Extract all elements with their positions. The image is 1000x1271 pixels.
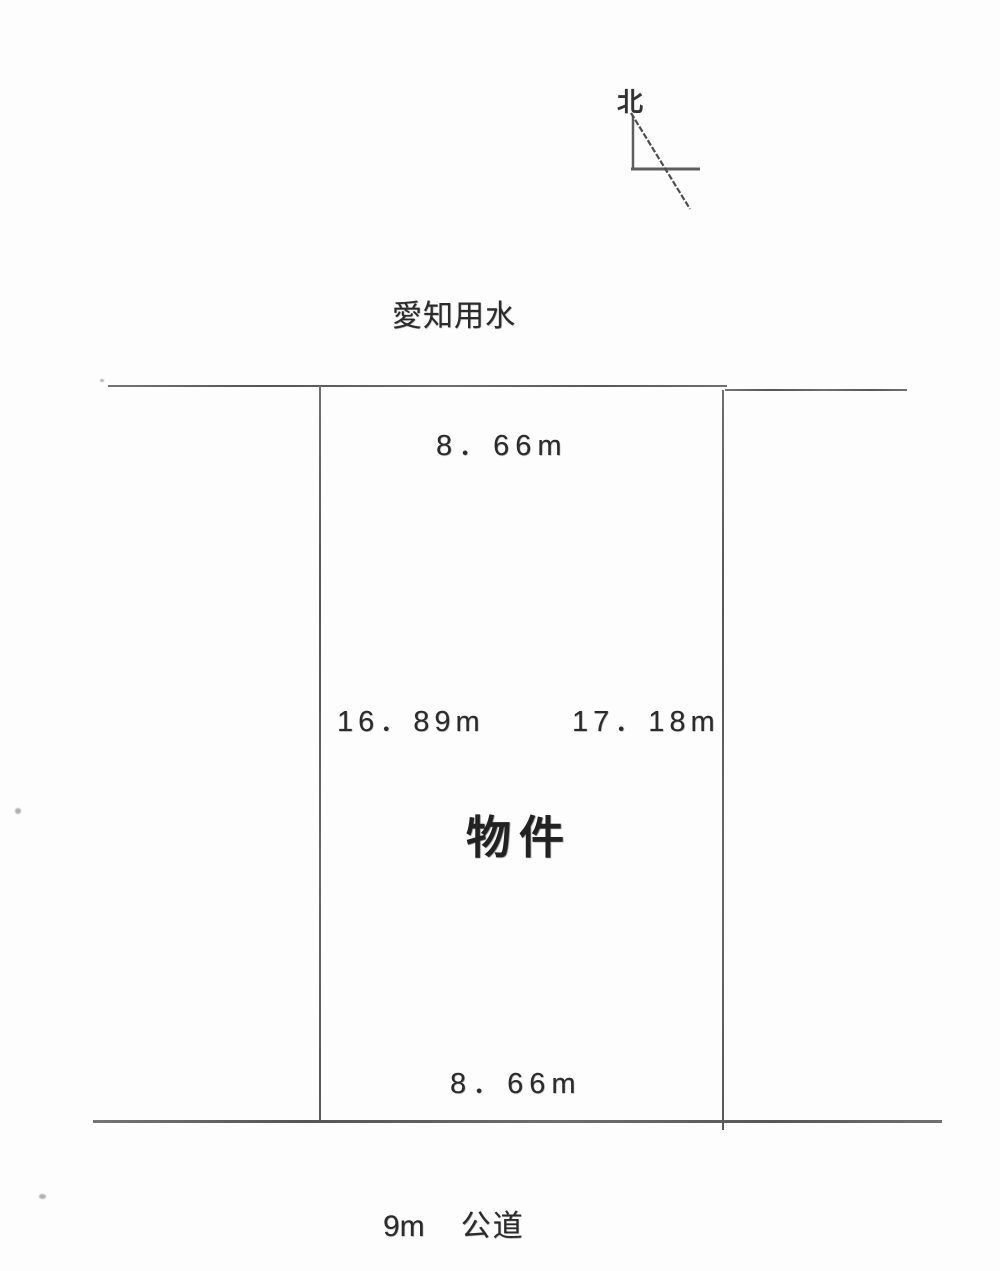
waterway-boundary-line-left <box>108 385 727 387</box>
plot-east-boundary-line <box>722 390 724 1130</box>
road-boundary-line <box>93 1120 942 1123</box>
road-width-label: 9m <box>383 1210 425 1243</box>
scan-speck <box>15 808 21 814</box>
plot-west-boundary-line <box>319 386 321 1122</box>
property-label: 物件 <box>466 801 572 866</box>
diagram-layer: 北 愛知用水 8．66m 16．89m 17．18m 8．66m 物件 9m公道 <box>0 0 1000 1271</box>
waterway-label: 愛知用水 <box>392 291 516 335</box>
north-indicator: 北 <box>595 80 715 220</box>
dimension-bottom: 8．66m <box>450 1060 582 1102</box>
north-label: 北 <box>617 87 643 117</box>
dimension-left: 16．89m <box>337 698 485 740</box>
road-type-label: 公道 <box>461 1210 525 1243</box>
dimension-top: 8．66m <box>436 422 568 464</box>
scanned-land-plot-diagram: 北 愛知用水 8．66m 16．89m 17．18m 8．66m 物件 9m公道 <box>0 0 1000 1271</box>
dimension-right: 17．18m <box>572 698 720 740</box>
scan-speck <box>100 379 104 382</box>
north-arrow-diagonal <box>631 113 690 209</box>
scan-speck <box>39 1194 46 1199</box>
road-label: 9m公道 <box>383 1201 525 1245</box>
waterway-boundary-line-right <box>725 389 907 391</box>
